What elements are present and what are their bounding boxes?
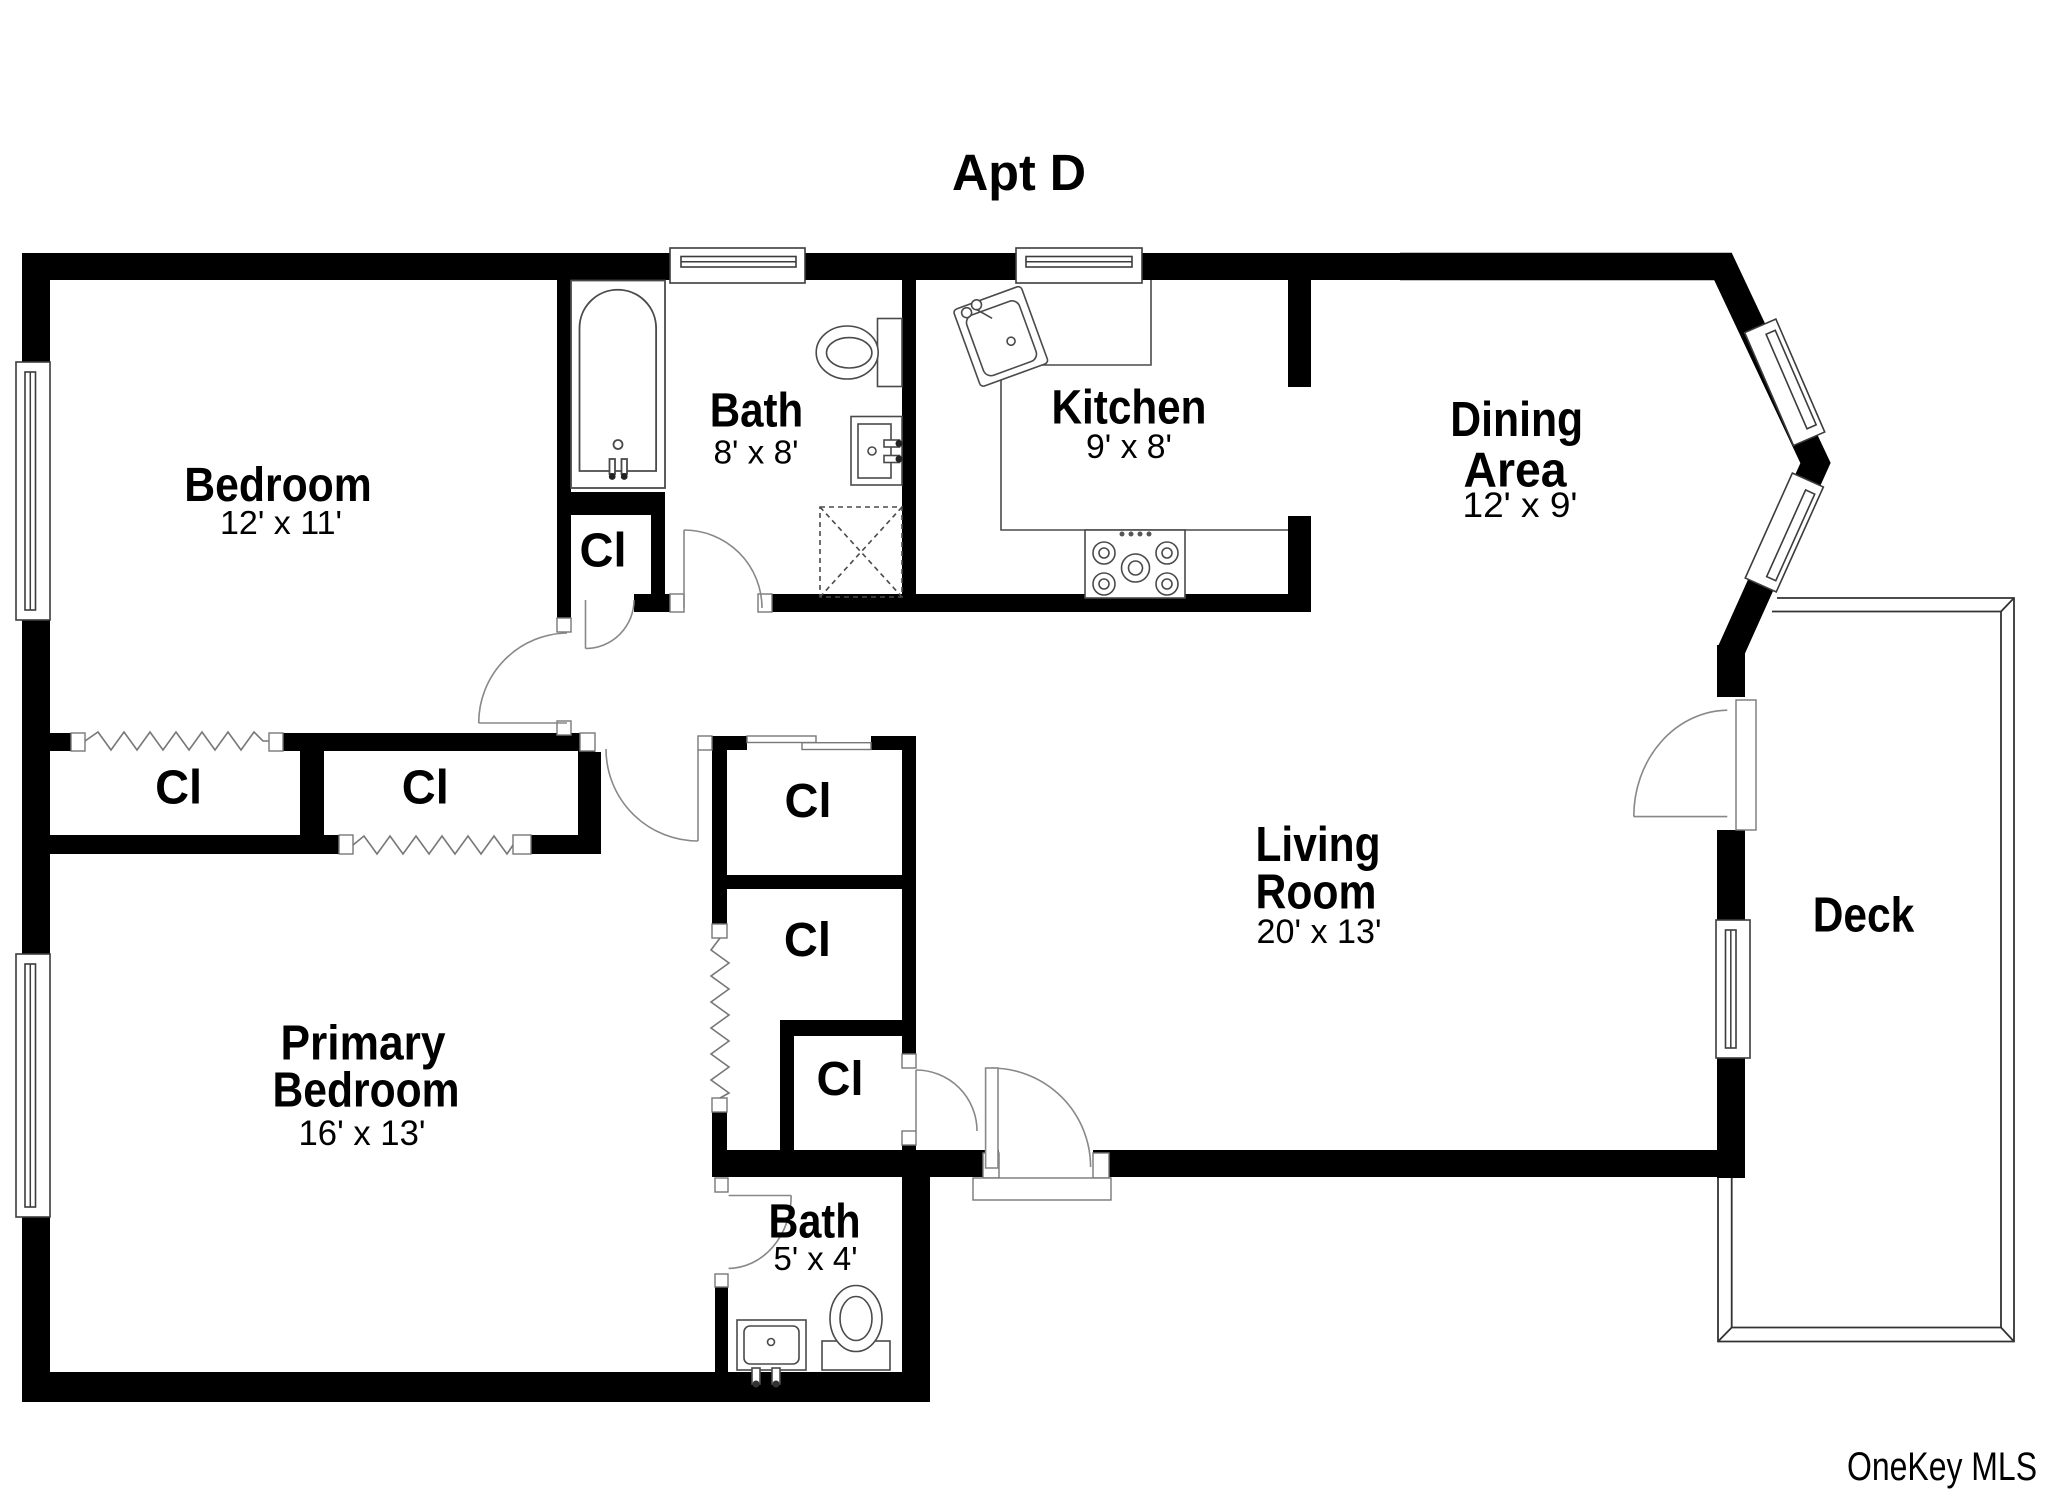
svg-text:12' x 9': 12' x 9' [1463,486,1578,525]
svg-text:Primary: Primary [281,1017,446,1071]
svg-text:Dining: Dining [1450,393,1583,447]
svg-text:9' x 8': 9' x 8' [1086,428,1172,466]
svg-text:Cl: Cl [785,774,832,828]
svg-text:OneKey MLS: OneKey MLS [1847,1445,2037,1489]
svg-text:Cl: Cl [817,1052,864,1106]
svg-text:5' x 4': 5' x 4' [774,1240,858,1277]
svg-text:Cl: Cl [580,524,627,578]
svg-text:Deck: Deck [1813,889,1915,943]
svg-text:16' x 13': 16' x 13' [299,1114,426,1153]
svg-text:8' x 8': 8' x 8' [714,435,799,472]
svg-text:Cl: Cl [784,913,831,967]
svg-text:12' x 11': 12' x 11' [220,504,342,541]
svg-text:20' x 13': 20' x 13' [1257,913,1382,951]
svg-text:Cl: Cl [402,761,449,815]
svg-text:Kitchen: Kitchen [1052,381,1207,435]
svg-text:Bath: Bath [710,385,804,438]
svg-text:Cl: Cl [155,761,202,815]
svg-text:Bedroom: Bedroom [273,1064,460,1118]
svg-text:Apt D: Apt D [952,144,1086,201]
svg-text:Room: Room [1256,865,1377,920]
